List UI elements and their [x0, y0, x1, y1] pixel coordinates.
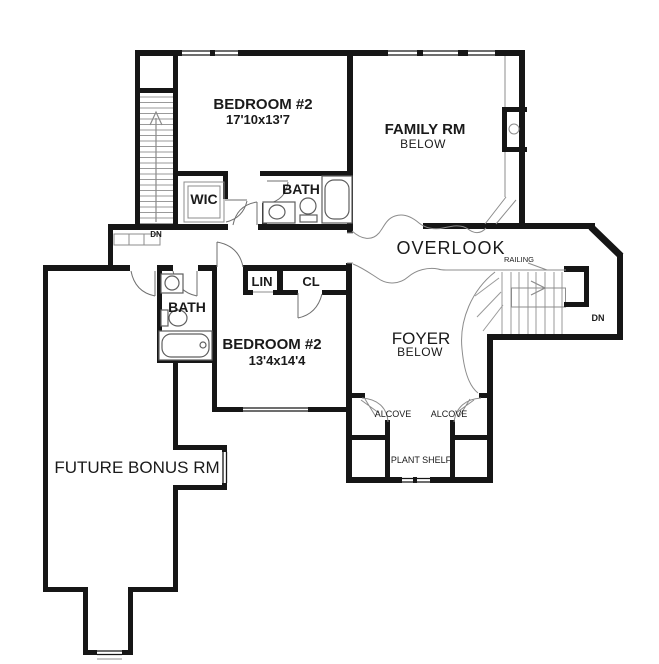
- label-plant-shelf: PLANT SHELF: [391, 455, 452, 465]
- sink: [269, 205, 285, 219]
- toilet-tank: [161, 310, 168, 326]
- closet-door: [298, 293, 322, 318]
- floor-plan-drawing: BEDROOM #2 17'10x13'7 FAMILY RM BELOW WI…: [0, 0, 659, 664]
- overlook-opening-jambs: [347, 233, 353, 263]
- label-railing: RAILING: [504, 255, 534, 264]
- curved-stairs: [444, 263, 589, 334]
- toilet-tank: [300, 215, 317, 222]
- label-closet: CL: [302, 274, 319, 289]
- sink: [165, 276, 179, 290]
- label-alcove-right: ALCOVE: [431, 409, 468, 419]
- label-bedroom-lower: BEDROOM #2: [222, 336, 321, 353]
- toilet-bowl: [300, 198, 316, 214]
- tub-basin: [325, 180, 349, 219]
- label-bedroom-upper-dims: 17'10x13'7: [226, 112, 290, 127]
- lower-bedroom-door: [217, 242, 243, 267]
- exterior-walls: [43, 50, 623, 655]
- upper-stairs: [140, 97, 173, 224]
- bonus-room-door: [131, 271, 155, 296]
- lower-bath-fixtures: [159, 274, 212, 360]
- stair-direction-arrow: [150, 112, 162, 222]
- label-foyer-below: BELOW: [397, 345, 443, 359]
- tub-drain: [200, 342, 206, 348]
- label-linen: LIN: [252, 274, 273, 289]
- label-dn-lower: DN: [592, 313, 605, 323]
- label-dn-upper: DN: [150, 230, 162, 239]
- label-bedroom-upper: BEDROOM #2: [213, 96, 312, 113]
- railing-leader-line: [528, 263, 547, 270]
- wic-door: [225, 200, 247, 222]
- upper-bedroom-door: [233, 202, 257, 225]
- label-family-room-below: BELOW: [400, 137, 446, 151]
- label-bath-upper: BATH: [282, 181, 320, 197]
- floor-plan: BEDROOM #2 17'10x13'7 FAMILY RM BELOW WI…: [0, 0, 659, 664]
- label-bedroom-lower-dims: 13'4x14'4: [249, 353, 307, 368]
- label-wic: WIC: [190, 191, 217, 207]
- label-future-bonus: FUTURE BONUS RM: [54, 458, 219, 477]
- label-family-room: FAMILY RM: [385, 121, 466, 138]
- label-bath-lower: BATH: [168, 299, 206, 315]
- angled-chase-lines: [485, 197, 516, 224]
- label-alcove-left: ALCOVE: [375, 409, 412, 419]
- label-overlook: OVERLOOK: [396, 238, 505, 258]
